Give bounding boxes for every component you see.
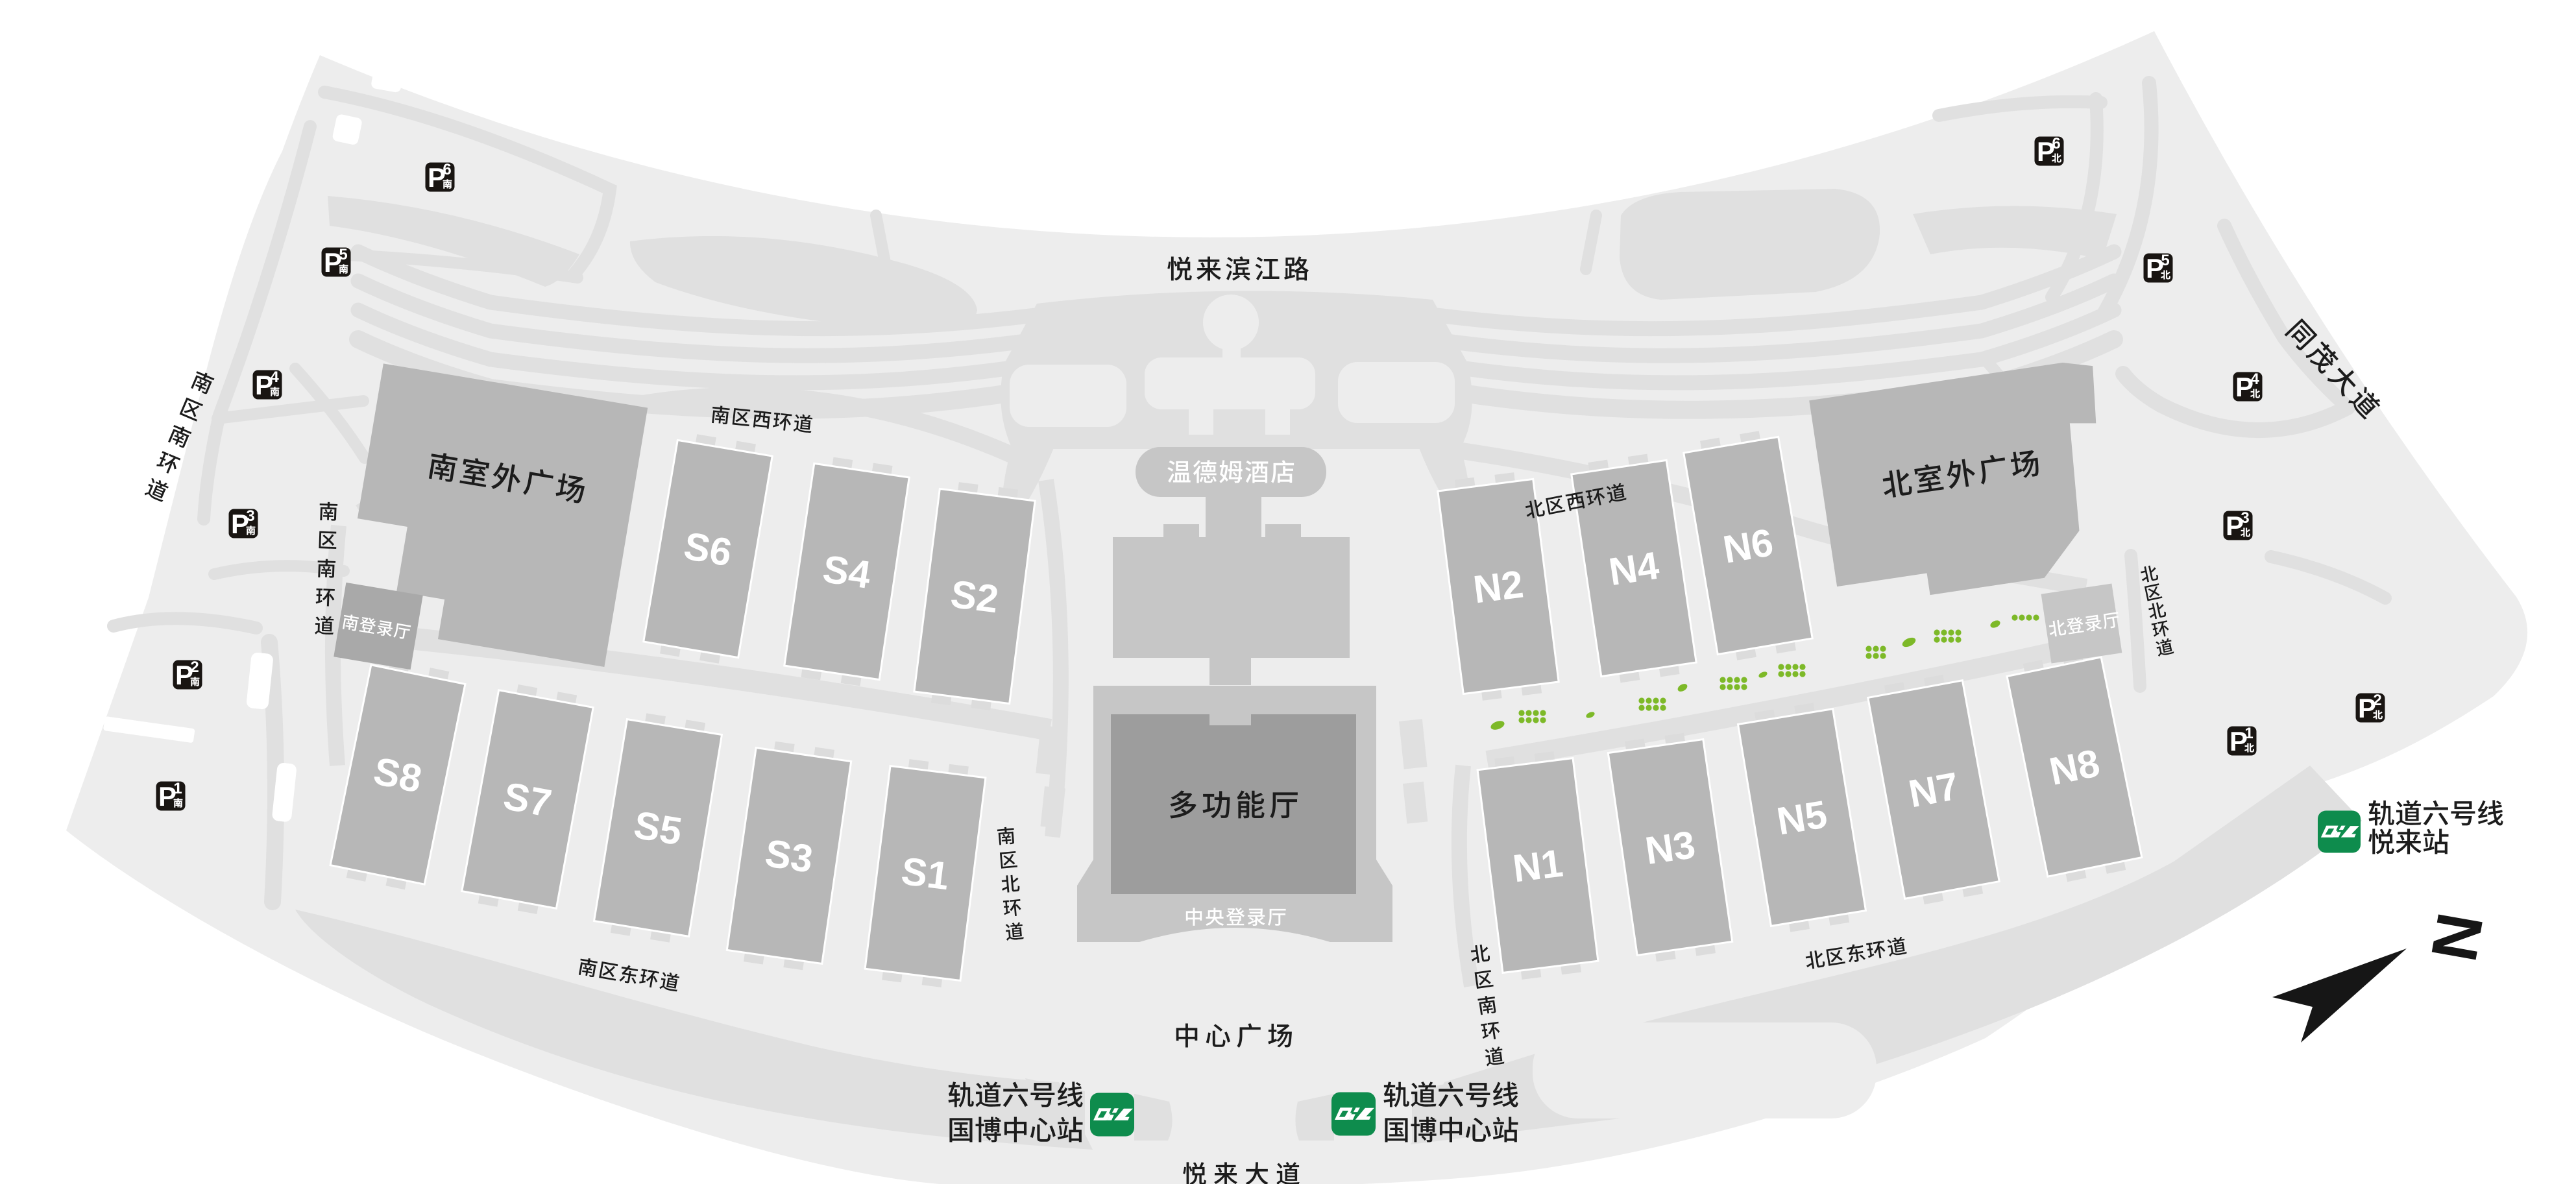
svg-text:N6: N6 [1720, 520, 1777, 572]
svg-text:S6: S6 [681, 524, 735, 574]
svg-text:S7: S7 [500, 774, 555, 825]
svg-text:3: 3 [246, 507, 254, 525]
svg-text:5: 5 [339, 246, 347, 263]
svg-text:1: 1 [2244, 725, 2253, 742]
svg-text:1: 1 [173, 780, 182, 797]
svg-text:6: 6 [2052, 135, 2060, 152]
svg-text:S3: S3 [762, 831, 816, 881]
svg-text:S1: S1 [899, 849, 951, 899]
svg-text:S4: S4 [820, 547, 874, 597]
svg-text:3: 3 [2241, 509, 2249, 527]
svg-text:4: 4 [270, 368, 279, 386]
svg-text:S2: S2 [948, 572, 1001, 622]
svg-text:S5: S5 [631, 803, 685, 854]
svg-text:N4: N4 [1606, 544, 1662, 594]
svg-text:2: 2 [190, 658, 199, 676]
svg-text:N1: N1 [1511, 841, 1565, 891]
svg-text:5: 5 [2161, 252, 2169, 269]
svg-text:S8: S8 [370, 749, 425, 801]
svg-text:N7: N7 [1905, 764, 1962, 816]
svg-text:6: 6 [443, 161, 451, 178]
svg-text:N5: N5 [1774, 792, 1830, 843]
svg-text:N3: N3 [1642, 823, 1697, 873]
svg-text:N2: N2 [1471, 562, 1525, 611]
svg-text:2: 2 [2373, 692, 2381, 709]
svg-text:4: 4 [2250, 370, 2259, 388]
